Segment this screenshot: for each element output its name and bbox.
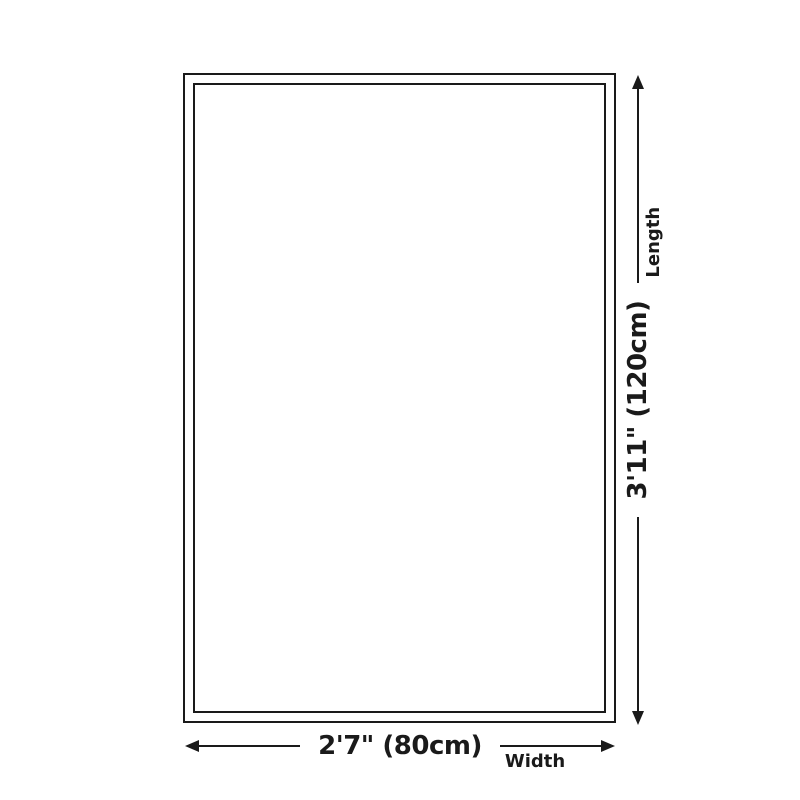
arrow-left-icon: [185, 740, 199, 752]
length-label: Length: [645, 207, 663, 278]
arrow-up-icon: [632, 75, 644, 89]
dimension-diagram: 3'11" (120cm) Length 2'7" (80cm) Width: [0, 0, 800, 800]
length-dimension-line-2: Length: [608, 89, 668, 283]
length-dimension: 3'11" (120cm) Length: [608, 75, 668, 725]
width-label: Width: [505, 753, 565, 771]
product-rectangle-outer: [183, 73, 616, 723]
arrow-right-icon: [601, 740, 615, 752]
width-dimension-line: [199, 745, 300, 747]
arrow-down-icon: [632, 711, 644, 725]
width-dimension: 2'7" (80cm) Width: [185, 716, 615, 776]
length-dimension-line: [637, 517, 639, 711]
width-dimension-line-2: Width: [500, 716, 601, 776]
length-value: 3'11" (120cm): [625, 301, 651, 500]
product-rectangle-inner: [193, 83, 606, 713]
width-value: 2'7" (80cm): [318, 733, 482, 759]
